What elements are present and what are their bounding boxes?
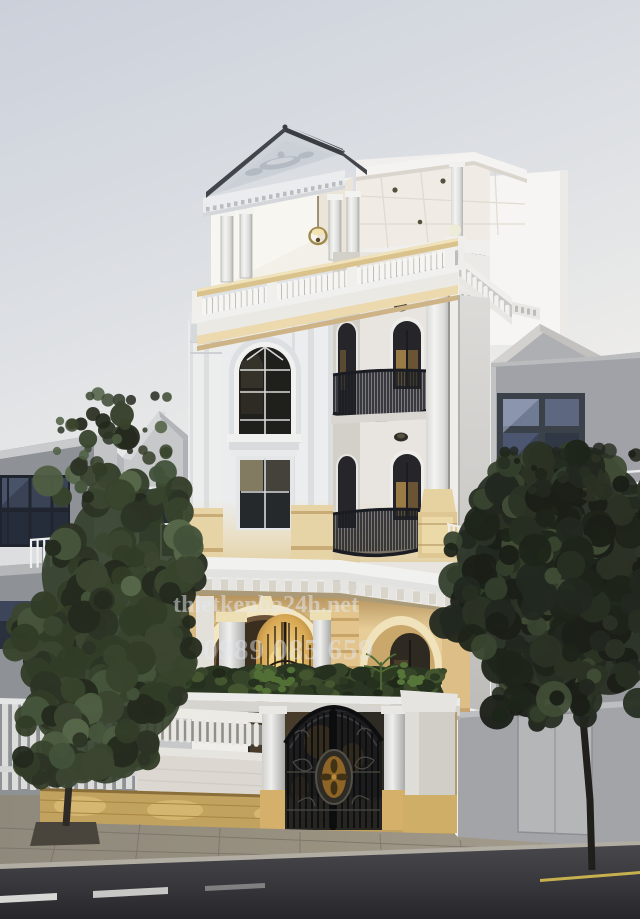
svg-text:thietkenha24h.net: thietkenha24h.net [173,592,359,618]
svg-text:0989 085 659: 0989 085 659 [203,634,373,666]
